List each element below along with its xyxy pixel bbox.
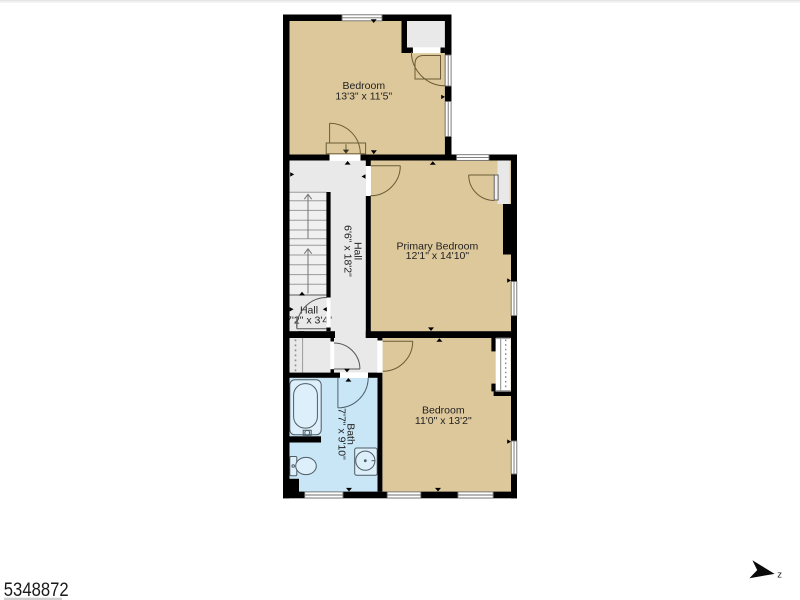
svg-text:13'3" x 11'5": 13'3" x 11'5" [335,91,392,103]
svg-text:12'1" x 14'10": 12'1" x 14'10" [406,250,470,262]
svg-text:z: z [777,570,782,581]
svg-text:7'7" x 9'10": 7'7" x 9'10" [335,408,347,460]
svg-text:5348872: 5348872 [4,579,69,600]
svg-text:11'0" x 13'2": 11'0" x 13'2" [415,415,472,427]
svg-text:7'2" x 3'4": 7'2" x 3'4" [286,315,332,327]
svg-text:6'6" x 18'2": 6'6" x 18'2" [342,225,354,277]
